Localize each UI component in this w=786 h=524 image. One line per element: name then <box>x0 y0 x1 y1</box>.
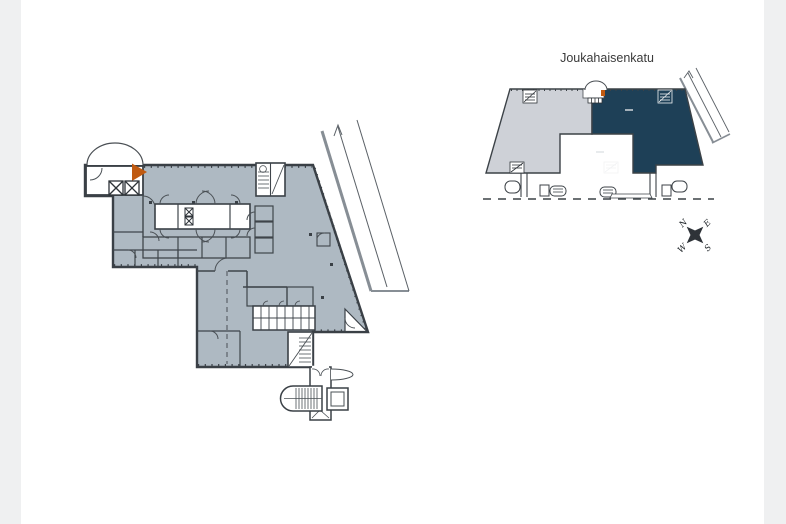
floor-plan-image: Joukahaisenkatu <box>0 0 786 524</box>
external-stair-tower <box>280 386 322 411</box>
road-lane-line <box>357 120 409 291</box>
compass-w: W <box>676 241 690 255</box>
overview-wing-east-highlighted <box>592 89 703 173</box>
external-bump <box>331 369 353 380</box>
south-external-structures <box>280 367 353 420</box>
entrance-vestibule <box>86 143 147 195</box>
wc-cluster <box>253 301 315 330</box>
compass-s: S <box>703 243 714 254</box>
elevator-icon <box>125 181 139 195</box>
road-direction-arrow-icon <box>334 125 342 136</box>
compass-e: E <box>701 217 714 230</box>
overview-south-entrances <box>505 173 687 197</box>
overview-stair-icon <box>604 162 618 173</box>
elevator-icon <box>109 181 123 195</box>
stairwell-north <box>256 163 285 196</box>
stairwell-south <box>288 332 313 367</box>
entrance-canopy <box>87 143 143 165</box>
entrance-marker-icon <box>601 90 605 96</box>
core-shaft-icon <box>185 208 193 225</box>
street-label: Joukahaisenkatu <box>560 51 654 65</box>
main-floor-plan <box>85 120 409 420</box>
overview-wing-west <box>486 89 592 173</box>
compass-rose: N E S W <box>664 205 727 268</box>
street-detail <box>610 194 652 198</box>
overview-map: Joukahaisenkatu <box>483 51 730 199</box>
stair-treads <box>299 338 311 362</box>
overview-stair-icon <box>510 162 524 173</box>
overview-stair-icon <box>523 90 537 103</box>
overview-elevators <box>588 98 602 103</box>
external-lift <box>327 388 348 410</box>
entrance-canopy <box>585 81 607 90</box>
